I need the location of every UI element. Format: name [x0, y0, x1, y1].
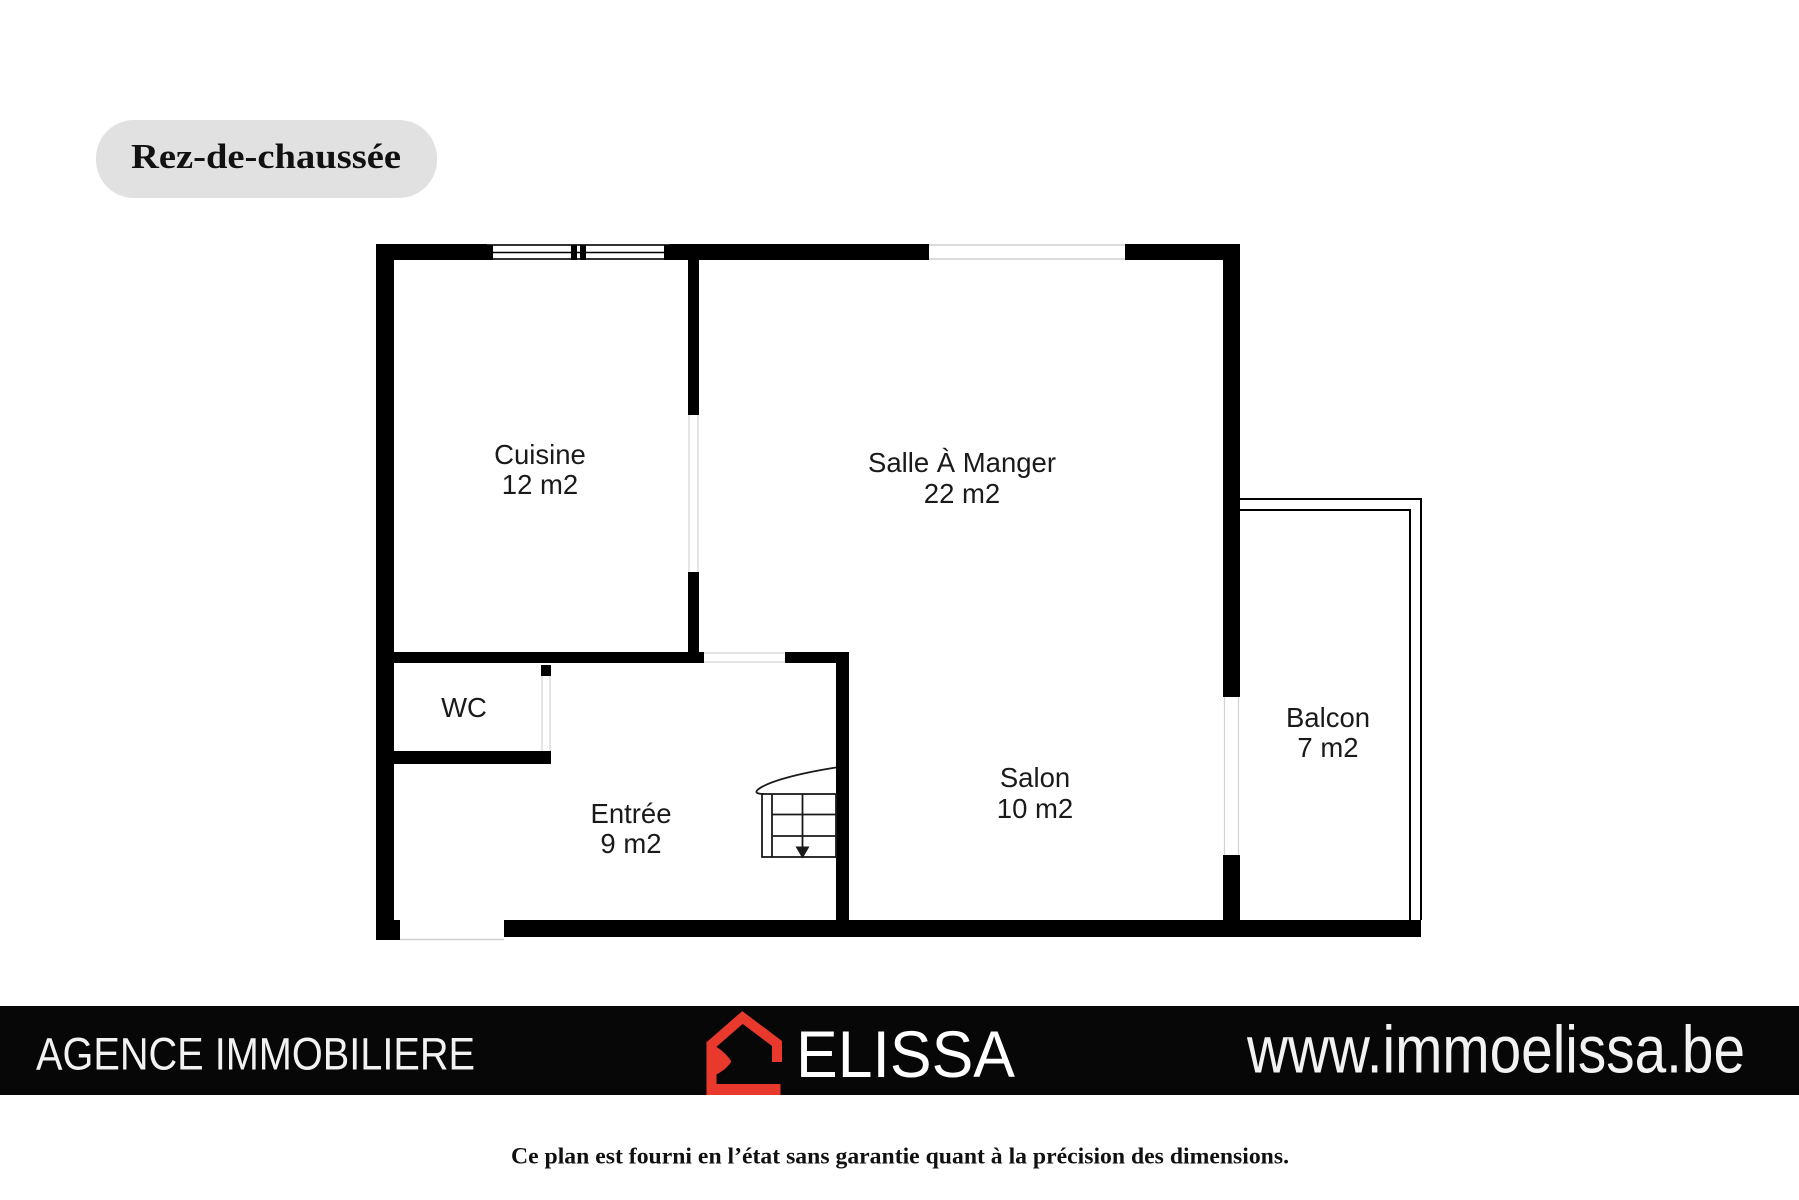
- svg-text:WC: WC: [441, 692, 487, 723]
- svg-text:Balcon: Balcon: [1286, 702, 1370, 733]
- svg-text:Ce plan est fourni en l’état s: Ce plan est fourni en l’état sans garant…: [511, 1144, 1289, 1170]
- svg-text:7 m2: 7 m2: [1297, 732, 1358, 763]
- svg-text:www.immoelissa.be: www.immoelissa.be: [1246, 1013, 1745, 1088]
- svg-text:AGENCE IMMOBILIERE: AGENCE IMMOBILIERE: [36, 1029, 475, 1080]
- svg-text:22 m2: 22 m2: [924, 478, 1000, 509]
- svg-text:Salon: Salon: [1000, 762, 1070, 793]
- svg-text:Cuisine: Cuisine: [494, 439, 586, 470]
- svg-text:12 m2: 12 m2: [502, 469, 578, 500]
- svg-text:Entrée: Entrée: [590, 798, 671, 829]
- svg-text:9 m2: 9 m2: [600, 828, 661, 859]
- svg-text:ELISSA: ELISSA: [796, 1017, 1015, 1091]
- svg-text:Rez-de-chaussée: Rez-de-chaussée: [131, 137, 401, 176]
- svg-text:10 m2: 10 m2: [997, 793, 1073, 824]
- svg-text:Salle À Manger: Salle À Manger: [868, 447, 1056, 478]
